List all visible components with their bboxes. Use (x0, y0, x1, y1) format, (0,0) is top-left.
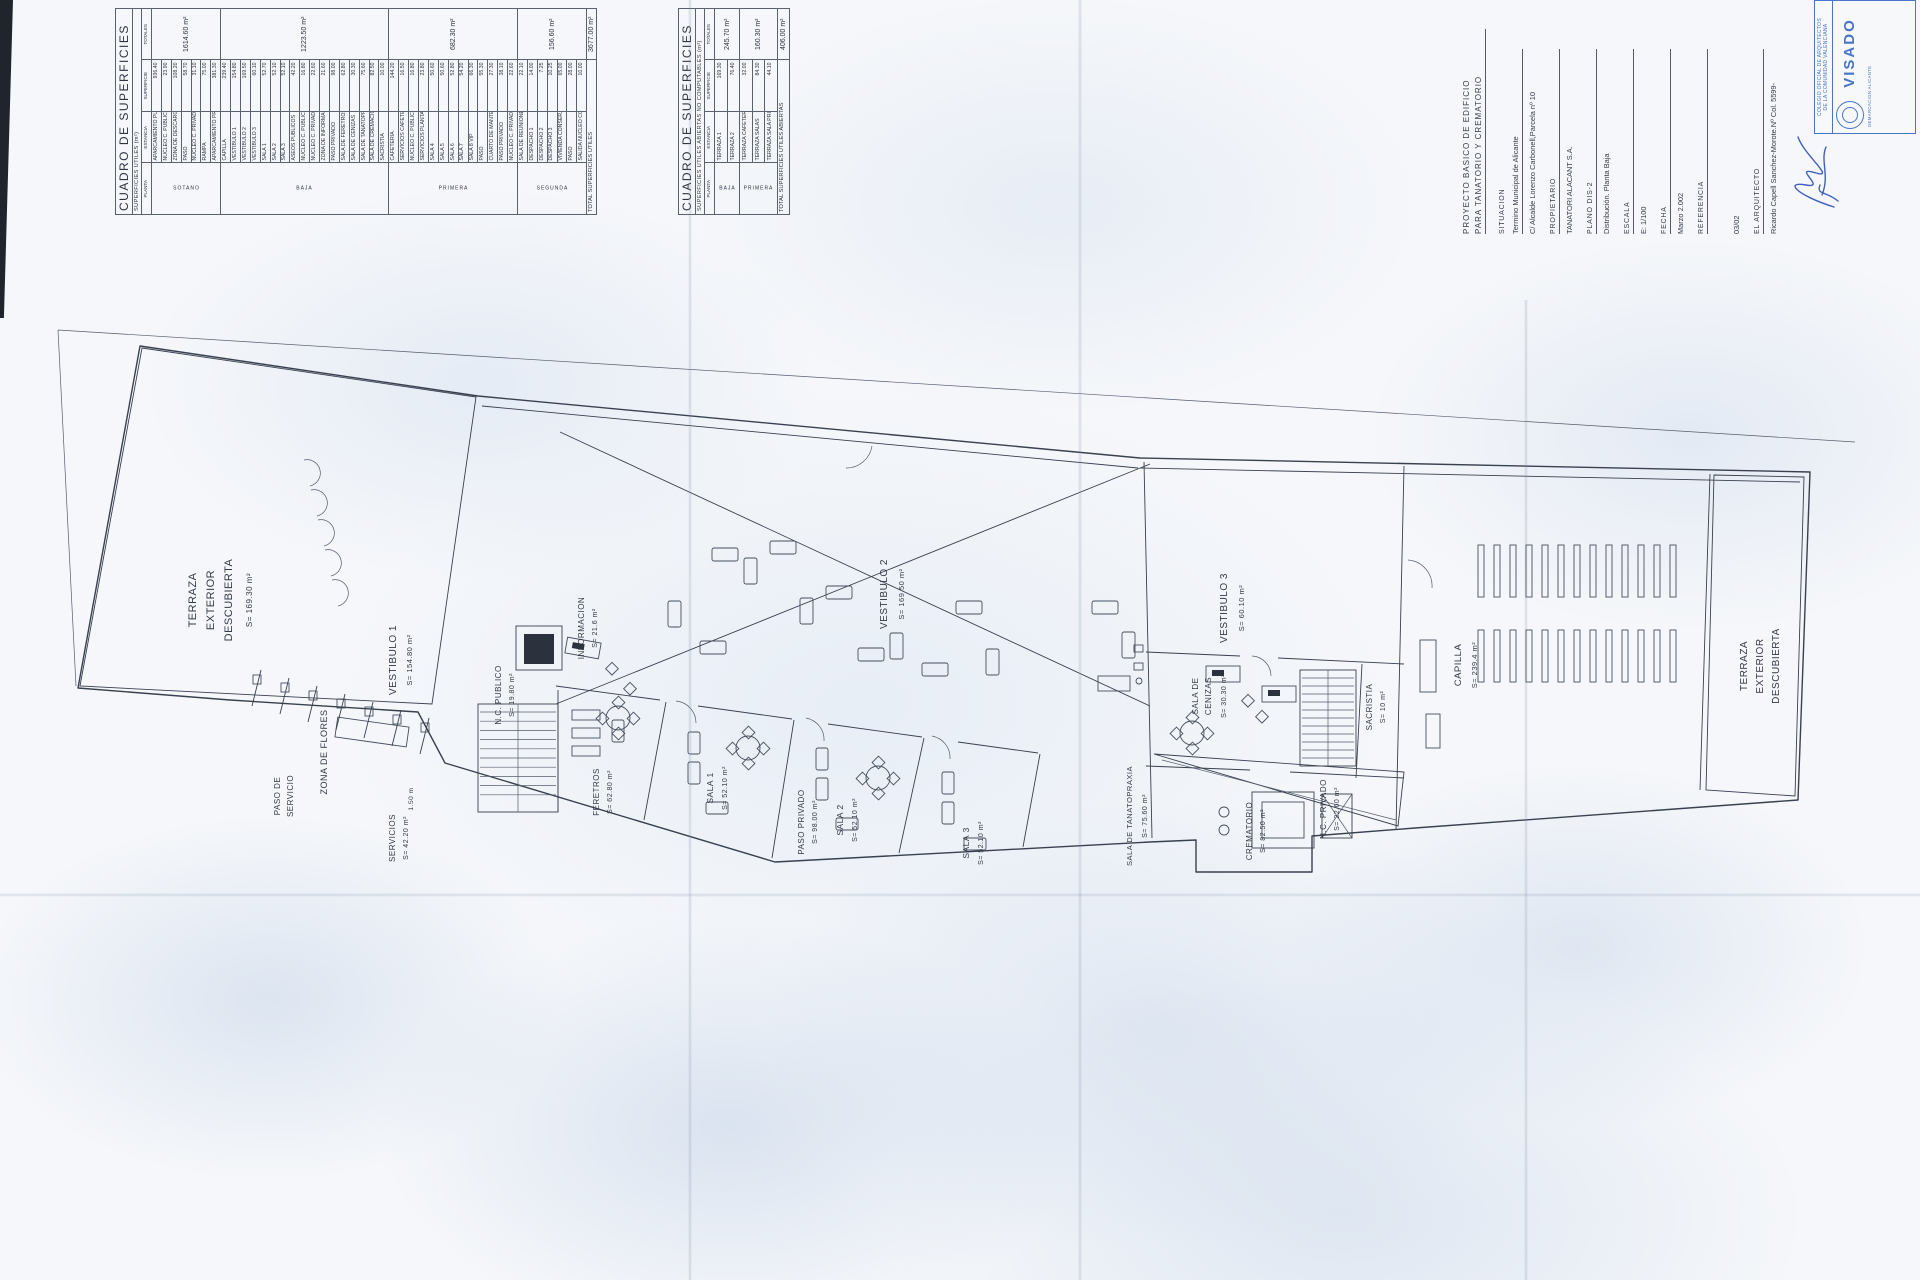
superficie-cell: 144.20 (389, 60, 399, 112)
estancia-cell: TERRAZA SALA PRIVADA (765, 112, 778, 164)
superficie-cell: 23.80 (419, 60, 429, 112)
table-header: ESTANCIA (705, 112, 715, 164)
estancia-cell: DESPACHO 3 (547, 112, 557, 164)
group-total-cell: 682.30 m² (389, 9, 518, 61)
titleblock-line: ESCALA (1624, 49, 1634, 234)
room-label: SACRISTIA (1365, 683, 1374, 730)
total-value-cell: 406.00 m² (777, 9, 790, 61)
titleblock-line: C/ Alcalde Lorenzo Carbonell,Parcela nº … (1528, 8, 1537, 234)
room-label: S= 169.50 m² (897, 568, 906, 619)
superficie-cell: 98.00 (330, 60, 340, 112)
table-total-row: TOTAL SUPERFICIES UTILES ABIERTAS406.00 … (777, 9, 790, 215)
superficie-cell: 32.00 (740, 60, 753, 112)
estancia-cell: ASEOS PUBLICOS (290, 112, 300, 164)
room-label: SERVICIO (286, 775, 295, 817)
superficie-cell: 82.50 (369, 60, 379, 112)
superficie-cell: 16.80 (300, 60, 310, 112)
estancia-cell: SALA 3 (280, 112, 290, 164)
superficie-cell: 239.40 (221, 60, 231, 112)
top-wall-inner-line (482, 406, 1800, 482)
room-label: FERETROS (592, 768, 601, 816)
tanatopraxia-fittings (1098, 645, 1143, 691)
cenizas-desks (1206, 666, 1296, 723)
superficie-cell: 50.60 (428, 60, 438, 112)
total-label-cell: TOTAL SUPERFICIES UTILES ABIERTAS (777, 60, 790, 215)
room-label: INFORMACION (577, 597, 586, 659)
superficie-cell: 84.30 (752, 60, 765, 112)
superficie-cell: 10.00 (577, 60, 587, 112)
room-label: S= 21.6 m² (592, 608, 599, 648)
estancia-cell: PASO (567, 112, 577, 164)
superficie-cell: 16.80 (409, 60, 419, 112)
room-label: VESTIBULO 3 (1219, 573, 1230, 643)
superficie-cell: 30.30 (349, 60, 359, 112)
colonnade-arcs (304, 460, 348, 606)
room-label: SALA 1 (705, 772, 715, 803)
superficie-cell: 65.00 (557, 60, 567, 112)
estancia-cell: SALIDA NUCLEO COMUNITARIO (577, 112, 587, 164)
estancia-cell: SALA 8 VIP (468, 112, 478, 164)
superficie-cell: 76.40 (727, 60, 740, 112)
estancia-cell: VIVIENDA CONSERJE (557, 112, 567, 164)
table-header: PLANTA (142, 163, 152, 215)
table-header: ESTANCIA (142, 112, 152, 164)
table-row: SOTANOAPARCAMIENTO PUBLICO936.401614.60 … (152, 9, 162, 215)
room-label: SALA DE (1191, 678, 1200, 715)
room-label: S= 154.80 m² (405, 634, 414, 685)
estancia-cell: TERRAZA 1 (715, 112, 728, 164)
lounge-furniture (612, 541, 1135, 850)
estancia-cell: PASO (181, 112, 191, 164)
estancia-cell: TERRAZA CAFETERIA (740, 112, 753, 164)
areas-table-utiles: CUADRO DE SUPERFICIESSUPERFICIES UTILES … (115, 8, 593, 215)
stamp-demarcacion-text: DEMARCACION ALICANTE (1867, 1, 1872, 133)
elevator (516, 626, 562, 670)
superficie-cell: 52.70 (260, 60, 270, 112)
terrace-1-grid (80, 348, 476, 704)
superficie-cell: 10.00 (379, 60, 389, 112)
room-label: PASO DE (273, 777, 282, 815)
titleblock-line: EL ARQUITECTO (1754, 49, 1764, 234)
superficie-cell: 60.10 (250, 60, 260, 112)
estancia-cell: SALA 2 (270, 112, 280, 164)
superficie-cell: 58.70 (181, 60, 191, 112)
table-header: TOTALES (142, 9, 152, 61)
superficie-cell: 22.60 (508, 60, 518, 112)
superficie-cell: 42.20 (290, 60, 300, 112)
room-label: S= 52.10 m² (852, 798, 859, 842)
room-label: S= 52.10 m² (722, 766, 729, 810)
table-header: SUPERFICIE (142, 60, 152, 112)
titleblock-line: PARA TANATORIO Y CREMATORIO (1474, 29, 1486, 234)
superficie-cell: 22.10 (517, 60, 527, 112)
room-label: VESTIBULO 2 (879, 559, 890, 629)
estancia-cell: CAPILLA (221, 112, 231, 164)
superficie-cell: 75.60 (359, 60, 369, 112)
estancia-cell: SALA 1 (260, 112, 270, 164)
canopy-diagonal-lines (556, 432, 1150, 706)
estancia-cell: CUARTO DE MANTENIMIENTO (488, 112, 498, 164)
estancia-cell: NUCLEO C. PUBLICO (409, 112, 419, 164)
superficie-cell: 169.30 (715, 60, 728, 112)
room-label: S= 62.80 m² (607, 770, 614, 814)
room-label: S= 52.10 m² (978, 821, 985, 865)
titleblock-line: SITUACION (1499, 8, 1506, 234)
planta-cell: PRIMERA (740, 163, 778, 215)
superficie-cell: 52.80 (448, 60, 458, 112)
superficie-cell: 10.25 (547, 60, 557, 112)
visado-stamp: COLEGIO OFICIAL DE ARQUITECTOS DE LA COM… (1814, 0, 1916, 134)
room-label: N.C. PRIVADO (1319, 779, 1328, 839)
table-row: PRIMERACAFETERIA144.20682.30 m² (389, 9, 399, 215)
superficie-cell: 55.30 (478, 60, 488, 112)
colegio-emblem-icon (1836, 101, 1864, 129)
estancia-cell: ZONA DE INFORMACION (320, 112, 330, 164)
room-label: TERRAZA (187, 572, 199, 627)
estancia-cell: CAFETERIA (389, 112, 399, 164)
estancia-cell: NUCLEO C. PRIVADO (508, 112, 518, 164)
room-label: S= 169.30 m² (245, 573, 254, 627)
estancia-cell: SERVICIOS CAFETERIA (399, 112, 409, 164)
estancia-cell: SALA DE TANATOPRAXIA (359, 112, 369, 164)
titleblock-line: PROPIETARIO (1550, 49, 1560, 234)
estancia-cell: APARCAMIENTO PUBLICO (152, 112, 162, 164)
group-total-cell: 1223.50 m² (221, 9, 389, 61)
room-label: ZONA DE FLORES (319, 709, 329, 794)
room-label: S= 42.20 m² (403, 816, 410, 860)
titleblock-line: Termino Municipal de Alicante (1511, 49, 1523, 234)
estancia-cell: SALA DE REUNIONES (517, 112, 527, 164)
room-label: DESCUBIERTA (223, 558, 235, 641)
estancia-cell: SALA DE CREMACION (369, 112, 379, 164)
planta-cell: SEGUNDA (517, 163, 586, 215)
superficie-cell: 16.50 (399, 60, 409, 112)
superficie-cell: 75.00 (201, 60, 211, 112)
building-outline (78, 346, 1810, 872)
room-label: S= 239.4 m² (1470, 642, 1479, 689)
estancia-cell: SALA 4 (428, 112, 438, 164)
room-label: S= 30.30 m² (1221, 674, 1228, 718)
door-arcs (676, 446, 1432, 759)
planta-cell: BAJA (221, 163, 389, 215)
room-label: 1.50 m (408, 788, 415, 811)
superficie-cell: 14.00 (527, 60, 537, 112)
table-row: PRIMERATERRAZA CAFETERIA32.00160.30 m² (740, 9, 753, 215)
estancia-cell: NUCLEO C. PUBLICO (161, 112, 171, 164)
superficie-cell: 66.30 (468, 60, 478, 112)
ramp-wedge (1154, 754, 1404, 826)
room-label: SALA 2 (835, 804, 845, 835)
titleblock-line: E: 1/100 (1639, 8, 1648, 234)
superficie-cell: 28.00 (567, 60, 577, 112)
superficie-cell: 54.20 (458, 60, 468, 112)
room-label: SERVICIOS (388, 814, 397, 862)
superficie-cell: 936.40 (152, 60, 162, 112)
room-label: CREMATORIO (1245, 802, 1254, 860)
estancia-cell: PASO PRIVADO (330, 112, 340, 164)
superficie-cell: 154.80 (231, 60, 241, 112)
titleblock-line: PROYECTO BASICO DE EDIFICIO (1462, 8, 1471, 234)
estancia-cell: APARCAMIENTO PRIVADO (211, 112, 221, 164)
estancia-cell: SACRISTIA (379, 112, 389, 164)
estancia-cell: SALA 7 (458, 112, 468, 164)
superficie-cell: 50.60 (438, 60, 448, 112)
title-block-lines: PROYECTO BASICO DE EDIFICIOPARA TANATORI… (1462, 8, 1778, 234)
estancia-cell: NUCLEO C. PUBLICO (300, 112, 310, 164)
room-label: SALA DE TANATOPRAXIA (1125, 766, 1134, 866)
group-total-cell: 1614.60 m² (152, 9, 221, 61)
planta-cell: SOTANO (152, 163, 221, 215)
superficie-cell: 44.10 (765, 60, 778, 112)
total-label-cell: TOTAL SUPERFICIES UTILES (587, 60, 597, 215)
estancia-cell: DESPACHO 2 (537, 112, 547, 164)
room-label: S= 82.50 m² (1260, 809, 1267, 853)
planta-cell: PRIMERA (389, 163, 518, 215)
titleblock-line: FECHA (1661, 49, 1671, 234)
room-label: EXTERIOR (1755, 638, 1766, 693)
title-block: PROYECTO BASICO DE EDIFICIOPARA TANATORI… (1446, 0, 1920, 320)
room-label: SALA 3 (961, 827, 971, 858)
room-label: DESCUBIERTA (1771, 628, 1782, 704)
room-label: S= 22.60 m² (1334, 787, 1341, 831)
estancia-cell: SALA DE CENIZAS (349, 112, 359, 164)
estancia-cell: ZONA DE DESCARGA (171, 112, 181, 164)
room-label: S= 98.00 m² (812, 800, 819, 844)
table-subtitle: SUPERFICIES UTILES (m²) (132, 8, 141, 215)
estancia-cell: NUCLEO C. PRIVADO (310, 112, 320, 164)
table-header: TOTALES (705, 9, 715, 61)
titleblock-line: Marzo 2.002 (1676, 8, 1685, 234)
table-row: SEGUNDASALA DE REUNIONES22.10156.60 m² (517, 9, 527, 215)
superficie-cell: 52.10 (280, 60, 290, 112)
group-total-cell: 245.70 m² (715, 9, 740, 61)
table-row: BAJATERRAZA 1169.30245.70 m² (715, 9, 728, 215)
estancia-cell: NUCLEO C. PRIVADO (191, 112, 201, 164)
estancia-cell: DESPACHO 1 (527, 112, 537, 164)
table-header: SUPERFICIE (705, 60, 715, 112)
table-title: CUADRO DE SUPERFICIES (678, 8, 695, 215)
estancia-cell: TERRAZA SALAS (752, 112, 765, 164)
estancia-cell: PASO PRIVADO (498, 112, 508, 164)
room-partitions (558, 462, 1710, 858)
superficie-cell: 31.10 (191, 60, 201, 112)
superficie-cell: 23.90 (161, 60, 171, 112)
estancia-cell: VESTIBULO 3 (250, 112, 260, 164)
chapel-altar (1420, 640, 1440, 748)
group-total-cell: 156.60 m² (517, 9, 586, 61)
estancia-cell: SALA DE FERETROS (339, 112, 349, 164)
room-label: TERRAZA (1739, 641, 1750, 691)
table-title: CUADRO DE SUPERFICIES (115, 8, 132, 215)
estancia-cell: SALA 6 (448, 112, 458, 164)
estancia-cell: PASO (478, 112, 488, 164)
titleblock-line: TANATORI ALACANT S.A. (1565, 8, 1574, 234)
group-total-cell: 160.30 m² (740, 9, 778, 61)
room-label: N.C. PUBLICO (494, 665, 503, 724)
room-label: S= 60.10 m² (1237, 585, 1246, 632)
titleblock-line: Distribución. Planta Baja (1602, 8, 1611, 234)
estancia-cell: VESTIBULO 2 (241, 112, 251, 164)
table-subtitle: SUPERFICIES UTILES ABIERTAS NO COMPUTABL… (695, 8, 704, 215)
titleblock-line: PLANO DIS-2 (1587, 49, 1597, 234)
room-label: S= 19.80 m² (509, 673, 516, 717)
room-label: CAPILLA (1453, 644, 1464, 687)
estancia-cell: SALA 5 (438, 112, 448, 164)
room-label: PASO PRIVADO (797, 789, 806, 854)
room-label: S= 75.60 m² (1142, 794, 1149, 838)
superficie-cell: 62.80 (339, 60, 349, 112)
stamp-visado-text: VISADO (1841, 5, 1858, 101)
areas-table-abiertas: CUADRO DE SUPERFICIESSUPERFICIES UTILES … (678, 8, 796, 215)
room-label: S= 10 m² (1380, 691, 1387, 724)
titleblock-line: REFERENCIA (1698, 49, 1708, 234)
superficie-cell: 38.10 (498, 60, 508, 112)
superficie-cell: 108.20 (171, 60, 181, 112)
planta-cell: BAJA (715, 163, 740, 215)
table-row: BAJACAPILLA239.401223.50 m² (221, 9, 231, 215)
room-labels: TERRAZAEXTERIORDESCUBIERTAS= 169.30 m²VE… (187, 558, 1782, 865)
table-header: PLANTA (705, 163, 715, 215)
room-label: VESTIBULO 1 (388, 625, 399, 695)
room-label: EXTERIOR (205, 570, 217, 630)
feretros-shelves (572, 710, 600, 756)
total-value-cell: 3677.00 m² (587, 9, 597, 61)
superficie-cell: 27.30 (488, 60, 498, 112)
estancia-cell: TERRAZA 2 (727, 112, 740, 164)
superficie-cell: 7.25 (537, 60, 547, 112)
superficie-cell: 169.50 (241, 60, 251, 112)
superficie-cell: 381.30 (211, 60, 221, 112)
estancia-cell: SERVICIOS PLANTA (419, 112, 429, 164)
estancia-cell: VESTIBULO 1 (231, 112, 241, 164)
terrace-right-grid (1706, 475, 1804, 796)
estancia-cell: RAMPA (201, 112, 211, 164)
superficie-cell: 21.60 (320, 60, 330, 112)
plot-boundary-line (58, 330, 1855, 686)
superficie-cell: 52.10 (270, 60, 280, 112)
superficie-cell: 22.60 (310, 60, 320, 112)
table-total-row: TOTAL SUPERFICIES UTILES3677.00 m² (587, 9, 597, 215)
stamp-org-line2: DE LA COMUNIDAD VALENCIANA (1823, 2, 1829, 132)
titleblock-line: 03/02 (1732, 8, 1741, 234)
room-label: CENIZAS (1204, 677, 1213, 715)
